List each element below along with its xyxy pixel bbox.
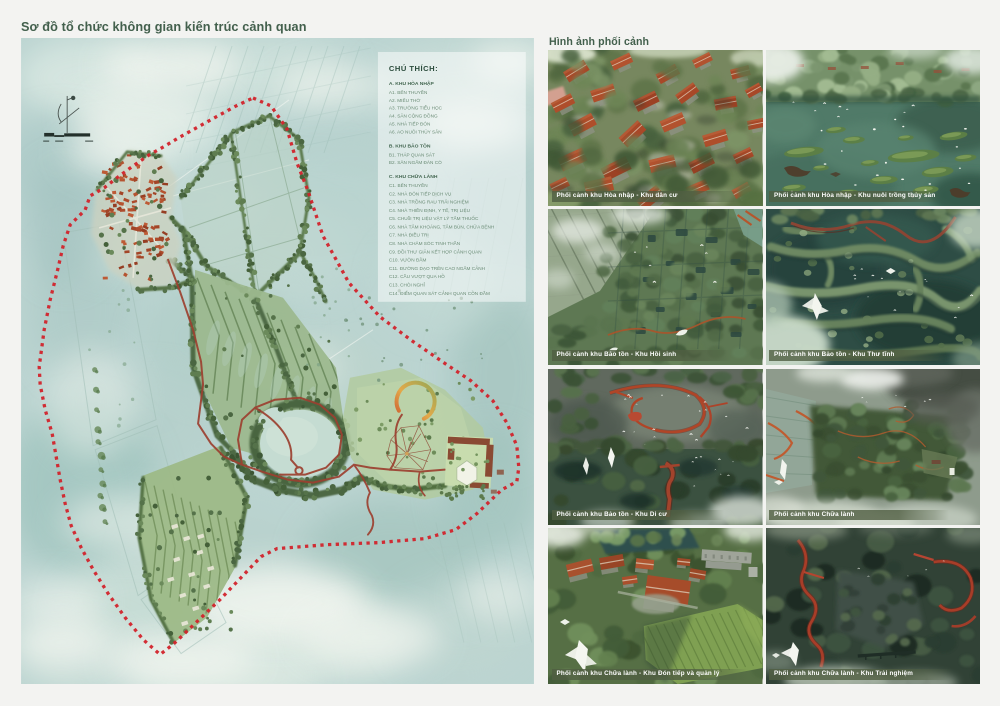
svg-text:C6. NHÀ TẮM KHOÁNG, TẮM BÙN, C: C6. NHÀ TẮM KHOÁNG, TẮM BÙN, CHỮA BỆNH (389, 222, 494, 229)
svg-text:A1. BẾN THUYỀN: A1. BẾN THUYỀN (389, 88, 427, 94)
svg-text:C9. ĐỒI THƯ GIÃN KẾT HỢP CẢNH: C9. ĐỒI THƯ GIÃN KẾT HỢP CẢNH QUAN (389, 248, 482, 254)
svg-text:C5. CHUỗI TRỊ LIỆU VẬT LÝ TẮM: C5. CHUỗI TRỊ LIỆU VẬT LÝ TẮM THUỐC (389, 214, 479, 221)
svg-text:C2. NHÀ ĐÓN TIẾP DỊCH VỤ: C2. NHÀ ĐÓN TIẾP DỊCH VỤ (389, 190, 452, 196)
svg-text:C4. NHÀ THIỀN ĐỊNH, Y TẾ, TRỊ: C4. NHÀ THIỀN ĐỊNH, Y TẾ, TRỊ LIỆU (389, 205, 471, 212)
svg-text:A3. TRƯỜNG TIỂU HỌC: A3. TRƯỜNG TIỂU HỌC (389, 104, 443, 110)
svg-text:B. KHU BẢO TỒN: B. KHU BẢO TỒN (389, 142, 431, 149)
svg-text:C13. CHÒI NGHỈ: C13. CHÒI NGHỈ (389, 281, 426, 287)
svg-text:C7. NHÀ ĐIỀU TRỊ: C7. NHÀ ĐIỀU TRỊ (389, 231, 429, 237)
svg-text:CHÚ THÍCH:: CHÚ THÍCH: (389, 63, 438, 72)
svg-text:A. KHU HÒA NHẬP: A. KHU HÒA NHẬP (389, 78, 435, 86)
svg-text:A6. AO NUÔI THỦY SẢN: A6. AO NUÔI THỦY SẢN (389, 128, 442, 134)
svg-text:C12. CẦU VƯỢT QUA HỒ: C12. CẦU VƯỢT QUA HỒ (389, 273, 445, 279)
svg-text:C10. VƯỜN ĐẦM: C10. VƯỜN ĐẦM (389, 256, 427, 262)
svg-text:C1. BẾN THUYỀN: C1. BẾN THUYỀN (389, 181, 428, 187)
svg-text:B2. SÂN NGẮM ĐÀN CÒ: B2. SÂN NGẮM ĐÀN CÒ (389, 157, 442, 164)
svg-text:C14. ĐIỂM QUAN SÁT CẢNH QUAN C: C14. ĐIỂM QUAN SÁT CẢNH QUAN CỒN ĐẦM (389, 289, 490, 295)
svg-text:C8. NHÀ CHĂM SÓC TINH THẦN: C8. NHÀ CHĂM SÓC TINH THẦN (389, 240, 460, 246)
svg-text:A4. SÂN CỘNG ĐỒNG: A4. SÂN CỘNG ĐỒNG (389, 112, 438, 118)
svg-text:A5. NHÀ TIẾP ĐÓN: A5. NHÀ TIẾP ĐÓN (389, 120, 431, 126)
svg-text:C. KHU CHỮA LÀNH: C. KHU CHỮA LÀNH (389, 172, 438, 179)
svg-text:B1. THÁP QUAN SÁT: B1. THÁP QUAN SÁT (389, 151, 435, 157)
svg-text:C11. ĐƯỜNG DẠO TRÊN CAO NGẮM C: C11. ĐƯỜNG DẠO TRÊN CAO NGẮM CẢNH (389, 263, 485, 270)
svg-text:C3. NHÀ TRỒNG RAU TRẢI NGHIỆM: C3. NHÀ TRỒNG RAU TRẢI NGHIỆM (389, 197, 469, 204)
svg-text:A2. MIẾU THỜ: A2. MIẾU THỜ (389, 96, 421, 102)
